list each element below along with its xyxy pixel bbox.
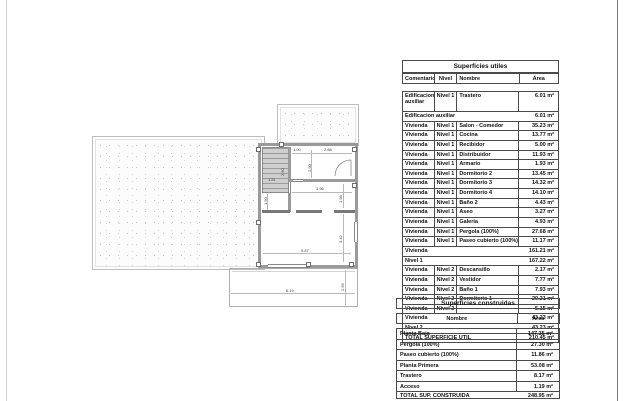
summary-value: 167.22 m² — [515, 257, 558, 266]
dimension-label: 2.50 — [308, 164, 312, 172]
dimension-label: 5.87 — [301, 249, 309, 253]
summary-label: Vivienda — [403, 247, 515, 256]
pillar — [256, 147, 261, 152]
summary-value: 161.21 m² — [515, 247, 558, 256]
cell-comentarios: Vivienda — [403, 266, 434, 275]
cell-nivel: Nivel 2 — [434, 286, 457, 295]
pillar — [256, 220, 261, 225]
cell-nombre: Baño 1 — [456, 286, 518, 295]
col-header-comentarios: Comentarios — [403, 74, 434, 83]
cell-nivel: Nivel 1 — [434, 208, 457, 217]
table-row: Edificacion auxiliarNivel 1Trastero6.01 … — [403, 92, 558, 112]
table-utiles-title: Superficies utiles — [402, 60, 559, 73]
table-utiles-header: Comentarios Nivel Nombre Área — [402, 73, 559, 84]
cell-nombre: Armario — [456, 160, 518, 169]
table-row: ViviendaNivel 1Recibidor5.00 m² — [403, 141, 558, 151]
cell-nivel: Nivel 1 — [434, 170, 457, 179]
cell-comentarios: Vivienda — [403, 189, 434, 198]
col-header-nombre: Nombre — [456, 74, 518, 83]
cell-area: 147.35 m² — [516, 329, 559, 339]
col-header-nombre-2: Nombre — [397, 314, 517, 323]
terrace-area — [92, 136, 265, 270]
dimension-line — [263, 253, 351, 254]
cell-area: 3.27 m² — [518, 208, 558, 217]
cell-area: 53.08 m² — [516, 361, 559, 371]
dimension-label: 1.00 — [293, 148, 301, 152]
sheet-right-border — [617, 0, 618, 401]
dimension-label: 1.98 — [339, 195, 343, 203]
sheet-left-border — [6, 0, 7, 401]
cell-nivel: Nivel 1 — [434, 228, 457, 237]
cell-area: 27.68 m² — [518, 228, 558, 237]
cell-comentarios: Edificacion auxiliar — [403, 92, 434, 111]
pillar — [256, 262, 261, 267]
cell-nombre: Distribuidor — [456, 151, 518, 160]
table-row: ViviendaNivel 2Vestidor7.77 m² — [403, 276, 558, 286]
table-row: Pergola (100%)27.30 m² — [397, 340, 559, 351]
table-row: ViviendaNivel 1Distribuidor11.93 m² — [403, 151, 558, 161]
table-row: ViviendaNivel 1Cocina13.77 m² — [403, 131, 558, 141]
door-arc-icon — [334, 159, 352, 177]
cell-area: 11.86 m² — [516, 350, 559, 360]
cell-nombre: Planta Baja — [397, 329, 516, 339]
table-construidas-header: Nombre Área — [396, 313, 560, 324]
table-row: ViviendaNivel 1Dormitorio 314.32 m² — [403, 179, 558, 189]
table-row: ViviendaNivel 2Baño 17.93 m² — [403, 286, 558, 296]
col-header-area: Área — [519, 74, 558, 83]
stairs — [262, 147, 290, 193]
cell-area: 14.10 m² — [518, 189, 558, 198]
door-opening — [288, 182, 291, 193]
cell-area: 4.93 m² — [518, 218, 558, 227]
cell-nombre: Dormitorio 2 — [456, 170, 518, 179]
table-row: ViviendaNivel 1Dormitorio 414.10 m² — [403, 189, 558, 199]
summary-value: 6.01 m² — [515, 112, 558, 121]
dimension-label: 3.42 — [339, 235, 343, 243]
cell-nombre: Pergola (100%) — [456, 228, 518, 237]
cell-area: 1.19 m² — [516, 382, 559, 392]
table-construidas-title: Superficies construidas — [396, 298, 560, 309]
table-utiles-title-text: Superficies utiles — [454, 63, 508, 70]
table-row: Planta Primera53.08 m² — [397, 361, 559, 372]
cell-area: 7.93 m² — [518, 286, 558, 295]
dimension-line — [343, 184, 344, 208]
mid-wall-segment-3 — [334, 210, 355, 213]
table-row: Paseo cubierto (100%)11.86 m² — [397, 350, 559, 361]
table-row: ViviendaNivel 2Descansillo2.17 m² — [403, 266, 558, 276]
cell-comentarios: Vivienda — [403, 208, 434, 217]
summary-label: Nivel 1 — [403, 257, 515, 266]
cell-nivel: Nivel 1 — [434, 237, 457, 246]
dimension-label: 6.19 — [286, 289, 294, 293]
cell-area: 13.45 m² — [518, 170, 558, 179]
cell-nombre: Paseo cubierto (100%) — [456, 237, 518, 246]
auxiliary-roof-texture — [280, 107, 356, 143]
cell-nivel: Nivel 1 — [434, 189, 457, 198]
table-row: ViviendaNivel 1Armario1.93 m² — [403, 160, 558, 170]
auxiliary-roof-area — [277, 104, 359, 146]
table-row: ViviendaNivel 1Baño 24.43 m² — [403, 199, 558, 209]
table-construidas-total-row: TOTAL SUP. CONSTRUIDA 248.95 m² — [396, 391, 560, 399]
cell-nombre: Vestidor — [456, 276, 518, 285]
cell-nombre: Salon - Comedor — [456, 122, 518, 131]
table-row: ViviendaNivel 1Salon - Comedor35.23 m² — [403, 122, 558, 132]
table-row: ViviendaNivel 1Galeria4.93 m² — [403, 218, 558, 228]
table-row: Planta Baja147.35 m² — [397, 329, 559, 340]
cell-comentarios: Vivienda — [403, 170, 434, 179]
dimension-line — [292, 153, 352, 154]
table-construidas-title-text: Superficies construidas — [441, 300, 515, 307]
dimension-line — [343, 214, 344, 262]
cell-area: 35.23 m² — [518, 122, 558, 131]
window-opening-right — [354, 222, 358, 242]
cell-nombre: Galeria — [456, 218, 518, 227]
cell-comentarios: Vivienda — [403, 218, 434, 227]
summary-row: Edificacion auxiliar6.01 m² — [403, 112, 558, 122]
cell-area: 4.43 m² — [518, 199, 558, 208]
total-construida-value: 248.95 m² — [516, 392, 559, 398]
col-header-nivel: Nivel — [434, 74, 457, 83]
cell-comentarios: Vivienda — [403, 141, 434, 150]
table-row: ViviendaNivel 1Paseo cubierto (100%)11.1… — [403, 237, 558, 247]
dimension-label: 1.81 — [268, 178, 276, 182]
cell-comentarios: Vivienda — [403, 286, 434, 295]
summary-row: Vivienda161.21 m² — [403, 247, 558, 257]
pillar — [352, 183, 357, 188]
cell-area: 5.00 m² — [518, 141, 558, 150]
table-row: Trastero8.17 m² — [397, 371, 559, 382]
dimension-line — [231, 293, 355, 294]
dimension-label: 2.88 — [324, 148, 332, 152]
col-header-area-2: Área — [517, 314, 559, 323]
cell-nombre: Descansillo — [456, 266, 518, 275]
cell-area: 27.30 m² — [516, 340, 559, 350]
cell-nivel: Nivel 2 — [434, 266, 457, 275]
table-row: ViviendaNivel 1Pergola (100%)27.68 m² — [403, 228, 558, 238]
cell-area: 11.93 m² — [518, 151, 558, 160]
pillar — [352, 147, 357, 152]
cell-nombre: Trastero — [456, 92, 518, 111]
summary-label: Edificacion auxiliar — [403, 112, 515, 121]
cell-nombre: Pergola (100%) — [397, 340, 516, 350]
dimension-line — [345, 270, 346, 305]
table-row: ViviendaNivel 1Dormitorio 213.45 m² — [403, 170, 558, 180]
cell-nombre: Paseo cubierto (100%) — [397, 350, 516, 360]
cell-area: 1.93 m² — [518, 160, 558, 169]
cell-nivel: Nivel 1 — [434, 141, 457, 150]
cell-comentarios: Vivienda — [403, 276, 434, 285]
cell-nivel: Nivel 2 — [434, 276, 457, 285]
cell-nombre: Planta Primera — [397, 361, 516, 371]
cell-comentarios: Vivienda — [403, 199, 434, 208]
door-opening-2 — [293, 179, 303, 182]
cell-nivel: Nivel 1 — [434, 179, 457, 188]
mid-wall-segment-1 — [262, 210, 290, 213]
dimension-label: 1.50 — [264, 197, 268, 205]
cell-comentarios: Vivienda — [403, 237, 434, 246]
cell-nombre: Acceso — [397, 382, 516, 392]
cell-area: 7.77 m² — [518, 276, 558, 285]
cell-nivel: Nivel 1 — [434, 131, 457, 140]
cell-nombre: Cocina — [456, 131, 518, 140]
cell-comentarios: Vivienda — [403, 131, 434, 140]
cell-area: 14.32 m² — [518, 179, 558, 188]
cell-nivel: Nivel 1 — [434, 151, 457, 160]
cell-comentarios: Vivienda — [403, 160, 434, 169]
cell-nombre: Dormitorio 4 — [456, 189, 518, 198]
cell-nivel: Nivel 1 — [434, 160, 457, 169]
cell-area: 6.01 m² — [518, 92, 558, 111]
cell-nivel: Nivel 1 — [434, 92, 457, 111]
pillar — [349, 262, 354, 267]
dimension-label: 2.50 — [281, 168, 285, 176]
cell-nivel: Nivel 1 — [434, 218, 457, 227]
cell-area: 2.17 m² — [518, 266, 558, 275]
cell-comentarios: Vivienda — [403, 122, 434, 131]
cell-area: 8.17 m² — [516, 371, 559, 381]
cell-nivel: Nivel 1 — [434, 122, 457, 131]
total-construida-label: TOTAL SUP. CONSTRUIDA — [397, 392, 516, 398]
cell-nombre: Trastero — [397, 371, 516, 381]
table-row: ViviendaNivel 1Aseo3.27 m² — [403, 208, 558, 218]
cell-nombre: Recibidor — [456, 141, 518, 150]
cell-comentarios: Vivienda — [403, 179, 434, 188]
architectural-sheet: { "plan": { "dimension_labels": [ {"text… — [0, 0, 630, 401]
cell-comentarios: Vivienda — [403, 228, 434, 237]
summary-row: Nivel 1167.22 m² — [403, 257, 558, 267]
dimension-label: 3.96 — [316, 187, 324, 191]
pillar — [306, 262, 311, 267]
pillar — [279, 142, 284, 147]
dimension-label: 2.56 — [341, 283, 345, 291]
cell-nombre: Baño 2 — [456, 199, 518, 208]
cell-nivel: Nivel 1 — [434, 199, 457, 208]
table-superficies-construidas: Planta Baja147.35 m²Pergola (100%)27.30 … — [396, 328, 560, 392]
terrace-texture — [95, 139, 262, 267]
cell-comentarios: Vivienda — [403, 151, 434, 160]
mid-wall-segment-2 — [296, 210, 322, 213]
cell-area: 13.77 m² — [518, 131, 558, 140]
cell-nombre: Dormitorio 3 — [456, 179, 518, 188]
cell-area: 11.17 m² — [518, 237, 558, 246]
cell-nombre: Aseo — [456, 208, 518, 217]
